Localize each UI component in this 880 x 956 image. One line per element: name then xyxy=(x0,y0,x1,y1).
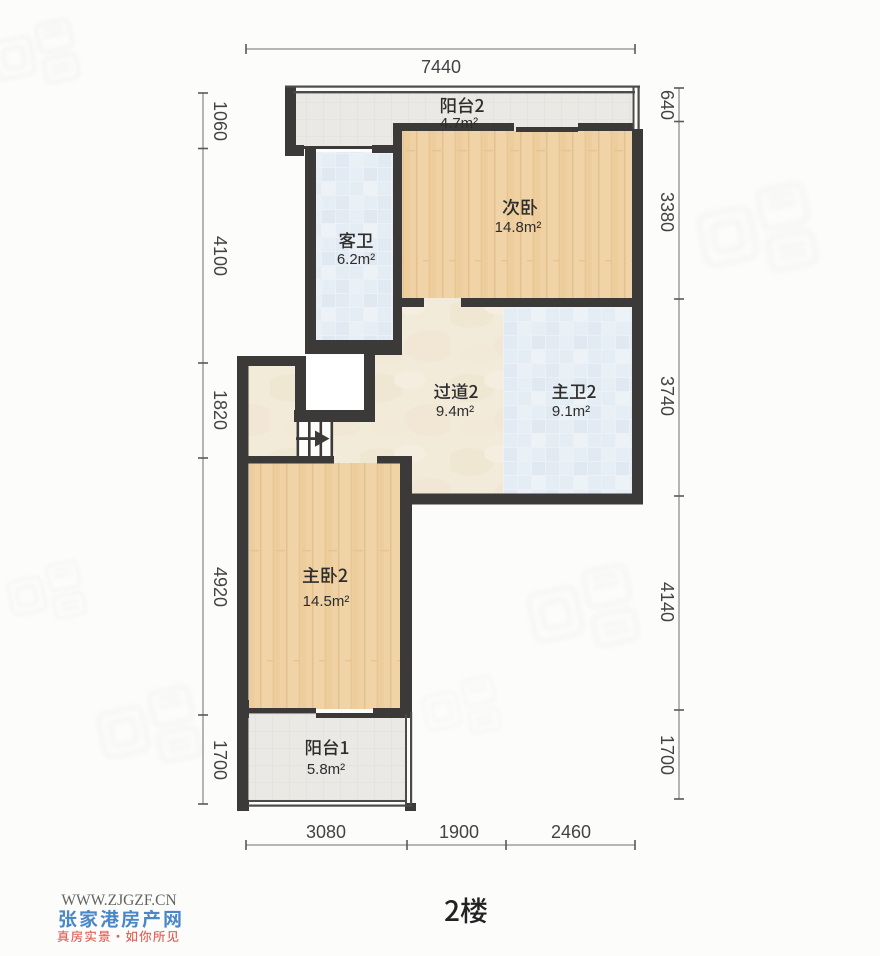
svg-text:7440: 7440 xyxy=(421,57,461,77)
svg-text:4.7m²: 4.7m² xyxy=(440,115,478,132)
svg-text:1820: 1820 xyxy=(210,390,230,430)
svg-text:1060: 1060 xyxy=(210,101,230,141)
svg-text:4100: 4100 xyxy=(210,236,230,276)
svg-text:WWW.ZJGZF.CN: WWW.ZJGZF.CN xyxy=(61,892,176,909)
svg-text:1700: 1700 xyxy=(210,740,230,780)
svg-text:9.1m²: 9.1m² xyxy=(552,403,590,420)
svg-text:3080: 3080 xyxy=(306,822,346,842)
svg-text:2460: 2460 xyxy=(551,822,591,842)
svg-text:640: 640 xyxy=(657,90,677,120)
svg-text:5.8m²: 5.8m² xyxy=(307,761,345,778)
svg-text:14.8m²: 14.8m² xyxy=(495,219,542,236)
svg-text:9.4m²: 9.4m² xyxy=(436,403,474,420)
svg-text:6.2m²: 6.2m² xyxy=(337,251,375,268)
svg-text:4920: 4920 xyxy=(210,567,230,607)
svg-text:14.5m²: 14.5m² xyxy=(303,593,350,610)
svg-text:3740: 3740 xyxy=(657,376,677,416)
svg-text:3380: 3380 xyxy=(657,192,677,232)
svg-text:4140: 4140 xyxy=(657,582,677,622)
svg-text:1700: 1700 xyxy=(657,735,677,775)
svg-text:1900: 1900 xyxy=(439,822,479,842)
